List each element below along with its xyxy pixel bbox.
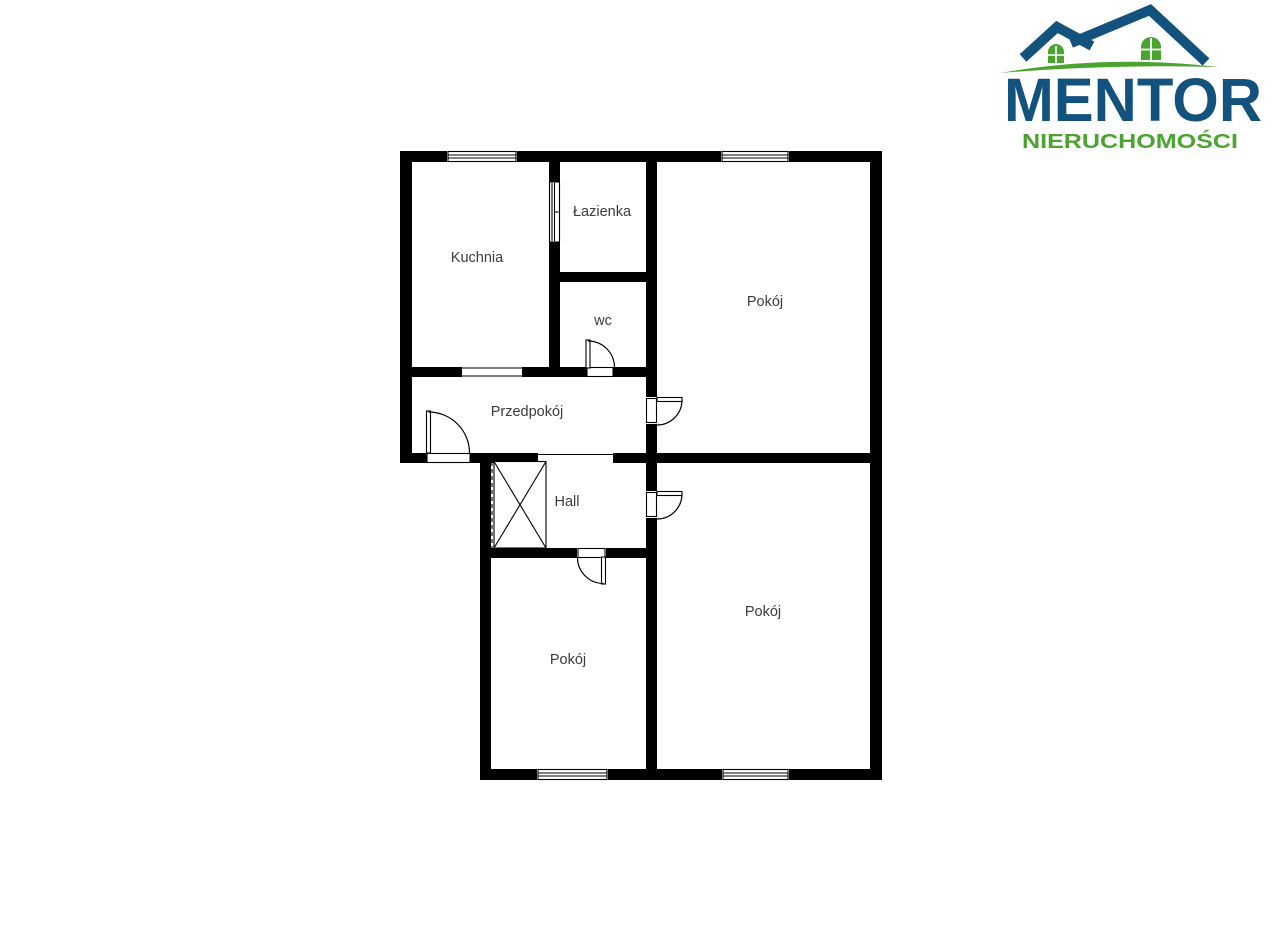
logo-brand-text: MENTOR bbox=[1004, 66, 1262, 134]
wall-kitchen-hallway bbox=[400, 367, 657, 377]
wall-bathroom-wc bbox=[549, 272, 657, 282]
passage-kitchen bbox=[462, 366, 522, 378]
window-room-top bbox=[721, 150, 789, 163]
wall-right bbox=[870, 151, 882, 780]
window-kitchen bbox=[447, 150, 517, 163]
room-label-wc: wc bbox=[593, 313, 612, 329]
wall-left-upper bbox=[400, 151, 412, 462]
wall-center-vertical bbox=[646, 162, 657, 780]
page: Kuchnia Łazienka wc Pokój Przedpokój Hal… bbox=[0, 0, 1280, 937]
window-room-bottom-left bbox=[537, 768, 608, 781]
room-label-pokoj-top: Pokój bbox=[747, 294, 783, 310]
window-room-bottom-right bbox=[722, 768, 789, 781]
door-room-bottom-right bbox=[645, 491, 682, 519]
room-label-pokoj-bottom-left: Pokój bbox=[550, 652, 586, 668]
door-room-bottom-left bbox=[577, 547, 606, 584]
doors bbox=[427, 182, 683, 584]
logo-window-left-icon bbox=[1048, 44, 1064, 63]
door-wc bbox=[586, 340, 615, 379]
room-label-pokoj-bottom-right: Pokój bbox=[745, 604, 781, 620]
room-label-przedpokoj: Przedpokój bbox=[491, 404, 564, 420]
walls bbox=[400, 151, 882, 780]
door-room-top bbox=[645, 397, 682, 425]
logo-window-right-icon bbox=[1141, 37, 1161, 60]
room-label-kuchnia: Kuchnia bbox=[451, 250, 504, 266]
door-entrance bbox=[427, 411, 471, 465]
mentor-logo: MENTOR NIERUCHOMOŚCI bbox=[980, 0, 1280, 160]
sliding-door-bathroom bbox=[550, 182, 560, 242]
wall-hallway-bottom bbox=[400, 453, 882, 463]
room-label-hall: Hall bbox=[555, 494, 580, 510]
logo-tagline-text: NIERUCHOMOŚCI bbox=[1022, 129, 1238, 153]
wall-hall-bottom bbox=[480, 548, 657, 558]
wardrobe-icon bbox=[490, 462, 547, 549]
room-label-lazienka: Łazienka bbox=[573, 204, 632, 220]
logo-house-icon bbox=[1000, 10, 1218, 73]
passage-hall bbox=[538, 453, 613, 465]
